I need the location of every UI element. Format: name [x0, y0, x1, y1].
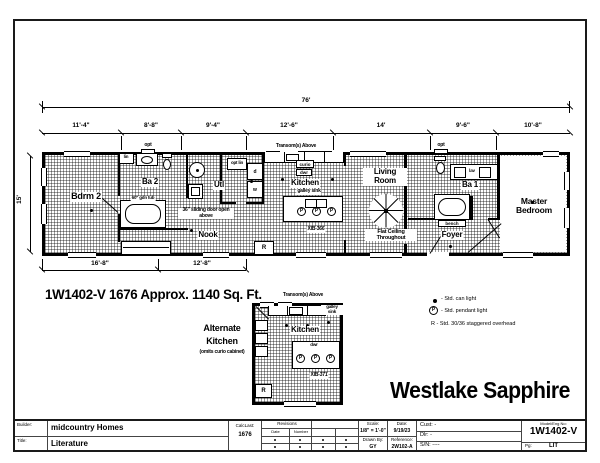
lav-label: lav	[468, 169, 476, 174]
ba2-sink	[141, 156, 153, 164]
dim-extension	[42, 101, 43, 113]
room-label-foyer: Foyer	[441, 231, 464, 240]
opt-label: opt	[436, 143, 445, 149]
linen-label: lin	[123, 155, 130, 160]
dlr-value: -	[430, 432, 432, 438]
opt-label: opt	[143, 143, 152, 149]
ba1-lav	[479, 167, 491, 178]
dim-label: 12'-8"	[192, 260, 212, 267]
cust-row: Cust: -	[420, 423, 436, 429]
garden-tub-label: 60" gdn tub	[131, 196, 156, 201]
pendant-light: P	[297, 207, 306, 216]
can-light	[331, 178, 334, 181]
wall	[497, 152, 500, 220]
reference-value: 2W102-A	[388, 445, 416, 450]
dim-label: 16'-8"	[90, 260, 110, 267]
ba1-toilet-tank	[434, 156, 446, 161]
cabinet-divider	[284, 152, 285, 163]
ba2-toilet-tank	[162, 153, 172, 158]
rev-dot	[274, 439, 276, 441]
drawer-cabinet: dwr	[296, 169, 312, 176]
builder-value: midcountry Homes	[51, 424, 123, 432]
opt-door	[434, 149, 448, 154]
ba2-toilet	[163, 159, 171, 170]
cabinet-divider	[307, 306, 308, 316]
sn-value: ----	[432, 442, 439, 448]
sliding-door-note: 36" sliding door open above	[178, 208, 234, 219]
dim-extension	[496, 136, 497, 150]
pg-value: LIT	[522, 443, 585, 449]
room-label-ba2: Ba 2	[141, 178, 159, 187]
dryer: d	[247, 163, 263, 180]
drawing-sheet: 76' 11'-4" 8'-8" 9'-4" 12'-6" 14' 9'-6" …	[0, 0, 600, 463]
dim-label-overall: 76'	[301, 97, 312, 104]
rev-dot	[322, 439, 324, 441]
room-label-living: Living Room	[363, 168, 407, 186]
closet	[121, 241, 171, 255]
rev-dot	[345, 446, 347, 448]
calclast-value: 1676	[230, 432, 260, 438]
can-light	[281, 178, 284, 181]
builder-label: Builder:	[17, 423, 32, 428]
rev-dot	[299, 439, 301, 441]
dim-extension	[246, 259, 247, 270]
alt-galley-sink-label: galley sink	[321, 305, 343, 315]
room-label-bdrm2: Bdrm 2	[70, 192, 102, 202]
sn-label: S/N:	[420, 442, 431, 448]
rev-dot	[345, 439, 347, 441]
overhead-marker: R	[255, 384, 272, 398]
reference-label: Reference:	[388, 438, 416, 443]
fan-hub	[384, 209, 388, 213]
ba2-lav	[191, 187, 200, 196]
window	[284, 401, 316, 407]
grid-line	[261, 436, 358, 437]
rev-dot	[274, 446, 276, 448]
can-light	[531, 201, 534, 204]
window	[203, 252, 229, 258]
window	[41, 204, 47, 224]
legend-pendant-light: - Std. pendant light	[441, 308, 487, 314]
window	[41, 168, 47, 186]
can-light	[327, 321, 330, 324]
window	[503, 252, 533, 258]
pendant-light: P	[327, 207, 336, 216]
shower-drain	[196, 169, 199, 172]
can-light	[90, 209, 93, 212]
date-label: Date:	[388, 422, 416, 427]
flat-ceiling-note: Flat Ceiling Throughout	[365, 229, 417, 241]
ba1-lav	[454, 167, 466, 178]
alt-island-code-label: XIB-371	[310, 373, 329, 379]
window	[543, 151, 559, 157]
dim-label: 9'-4"	[205, 122, 221, 129]
dim-label-depth: 15'	[16, 194, 23, 205]
wall	[118, 228, 188, 230]
calclast-label: CalcLast:	[230, 424, 260, 429]
cust-label: Cust:	[420, 422, 433, 428]
dim-label: 8'-8"	[143, 122, 159, 129]
cust-value: -	[434, 422, 436, 428]
pendant-light: P	[326, 354, 335, 363]
alt-kitchen-subheading: (omits curio cabinet)	[199, 350, 246, 356]
wall	[404, 244, 407, 256]
dim-extension	[158, 259, 159, 270]
room-label-utl: Utl	[213, 181, 225, 190]
dim-label: 9'-6"	[455, 122, 471, 129]
can-light-legend-symbol	[433, 299, 437, 303]
grid-line	[228, 421, 229, 450]
dlr-row: Dlr: -	[420, 433, 432, 439]
wall	[404, 152, 407, 230]
room-label-master: Master Bedroom	[507, 197, 561, 216]
alt-drawer-label: dwr	[309, 343, 318, 348]
sn-row: S/N: ----	[420, 443, 440, 449]
room-label-nook: Nook	[197, 231, 218, 240]
dim-extension	[42, 259, 43, 270]
dim-extension	[430, 136, 431, 150]
alt-room-label-kitchen: Kitchen	[290, 326, 320, 335]
dim-label: 10'-8"	[523, 122, 543, 129]
opt-linen-label: opt lin	[230, 161, 244, 166]
dim-extension	[569, 101, 570, 113]
cabinet-divider	[324, 152, 325, 163]
transom-label: Transom(s) Above	[275, 144, 317, 150]
dimension-line-depth	[30, 156, 31, 252]
date-value: 9/19/23	[388, 429, 416, 434]
wall	[246, 202, 264, 204]
window	[64, 151, 90, 157]
dim-extension	[333, 136, 334, 150]
legend-overhead: R - Std. 30/36 staggered overhead	[431, 321, 515, 327]
curio-cabinet: curio	[296, 160, 314, 168]
alt-pantry-cabinet	[255, 320, 268, 331]
dim-extension	[121, 136, 122, 150]
window	[68, 252, 96, 258]
alt-transom-label: Transom(s) Above	[282, 293, 324, 299]
dlr-label: Dlr:	[420, 432, 429, 438]
wall	[470, 196, 473, 220]
window	[350, 151, 386, 157]
pendant-light: P	[296, 354, 305, 363]
ba1-toilet	[436, 162, 445, 174]
pendant-light-legend-symbol: P	[429, 306, 438, 315]
model-name-title: Westlake Sapphire	[390, 377, 570, 404]
drawnby-value: GY	[359, 445, 387, 450]
alt-kitchen-heading: Alternate Kitchen	[189, 322, 255, 347]
can-light	[285, 324, 288, 327]
ceiling-fan	[369, 194, 403, 228]
pendant-light: P	[311, 354, 320, 363]
room-label-kitchen: Kitchen	[290, 179, 320, 188]
grid-line	[335, 428, 336, 450]
window	[564, 172, 570, 190]
spec-line: 1W1402-V 1676 Approx. 1140 Sq. Ft.	[45, 286, 262, 302]
alt-pantry-cabinet	[255, 346, 268, 357]
revisions-header: Revisions	[262, 422, 312, 427]
dim-label: 12'-6"	[279, 122, 299, 129]
washer: w	[247, 181, 263, 198]
wall	[344, 240, 346, 256]
window	[370, 252, 402, 258]
model-value: 1W1402-V	[522, 427, 585, 437]
grid-line	[261, 443, 358, 444]
alt-pantry-cabinet	[255, 333, 268, 344]
pendant-light: P	[312, 207, 321, 216]
garden-tub-basin	[125, 204, 161, 224]
legend-can-light: - Std. can light	[441, 296, 476, 302]
dim-label: 11'-4"	[71, 122, 90, 129]
grid-line	[47, 421, 48, 450]
title-label: Title:	[17, 439, 27, 444]
room-label-ba1: Ba 1	[461, 181, 479, 190]
wall	[220, 202, 236, 204]
can-light	[250, 180, 253, 183]
ba1-tub-basin	[438, 198, 466, 216]
window	[564, 208, 570, 228]
title-block: Builder: midcountry Homes Title: Literat…	[13, 419, 587, 452]
scale-value: 1/8" = 1'-0"	[359, 429, 387, 434]
overhead-marker: R	[254, 241, 274, 255]
rev-dot	[322, 446, 324, 448]
galley-sink-label: galley sink	[296, 189, 321, 195]
dimension-line-bottom	[42, 270, 246, 271]
can-light	[449, 245, 452, 248]
can-light	[190, 229, 193, 232]
bench: bench	[438, 220, 466, 227]
dim-extension	[246, 136, 247, 150]
rev-dot	[299, 446, 301, 448]
alt-range	[289, 307, 303, 315]
scale-label: Scale:	[359, 422, 387, 427]
rev-number-header: Number	[290, 430, 312, 434]
drawnby-label: Drawn By:	[359, 438, 387, 443]
dimension-line-overall	[42, 107, 570, 108]
rev-date-header: Date	[262, 430, 289, 434]
wall	[344, 152, 346, 166]
dim-extension	[181, 136, 182, 150]
dim-label: 14'	[376, 122, 387, 129]
window	[296, 252, 326, 258]
wall	[220, 152, 222, 202]
title-value: Literature	[51, 440, 88, 448]
cabinet-divider	[287, 306, 288, 316]
grid-line	[289, 428, 290, 450]
island-code-label: XIB-366	[307, 227, 326, 233]
closet-door-line	[123, 247, 169, 248]
